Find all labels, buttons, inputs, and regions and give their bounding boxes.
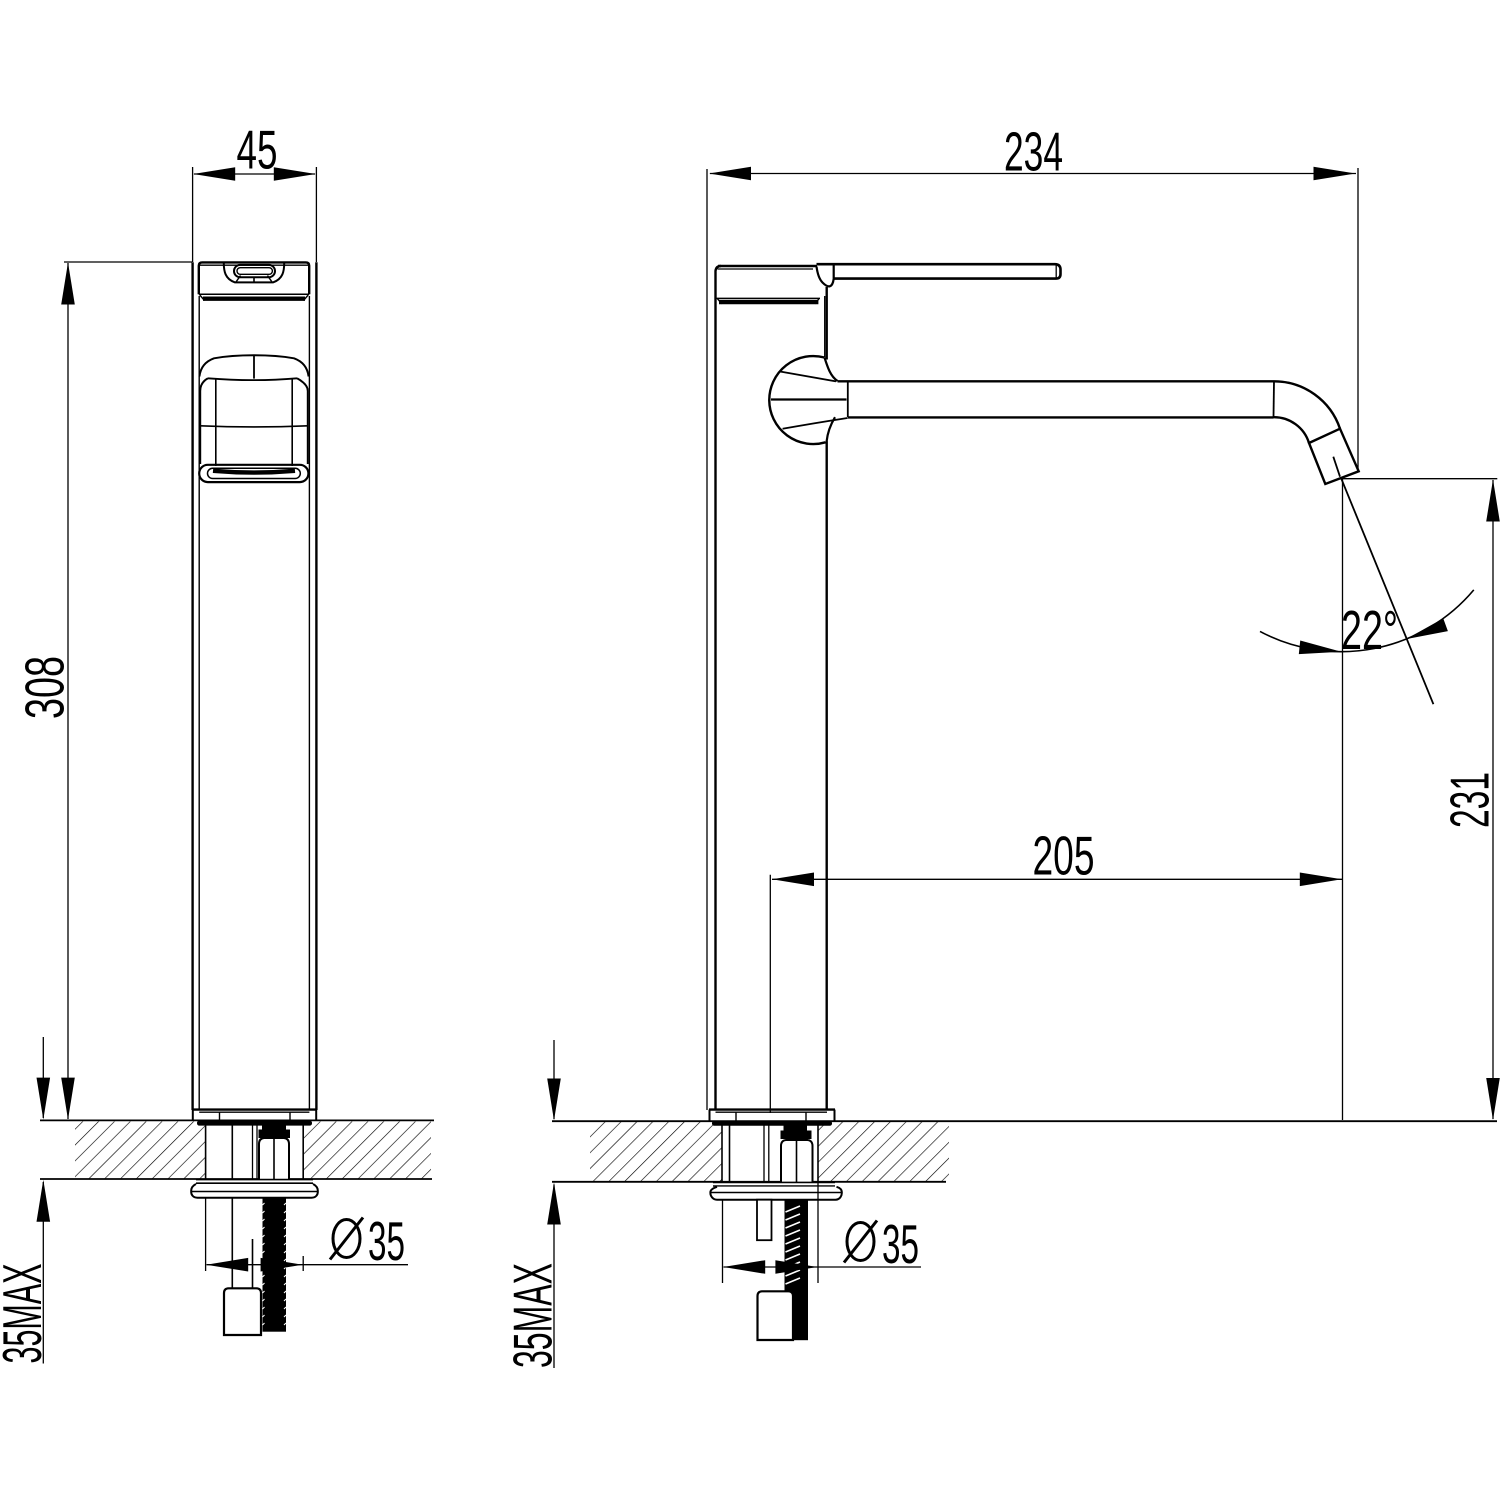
svg-text:45: 45 [237,119,278,181]
svg-text:231: 231 [1439,772,1500,828]
svg-text:22°: 22° [1341,599,1398,661]
svg-text:308: 308 [14,656,76,719]
svg-text:234: 234 [1004,121,1063,183]
svg-text:35: 35 [368,1210,405,1272]
svg-text:205: 205 [1033,825,1095,887]
svg-text:35MAX: 35MAX [0,1264,53,1364]
svg-text:35MAX: 35MAX [502,1263,564,1368]
svg-text:35: 35 [882,1213,919,1275]
